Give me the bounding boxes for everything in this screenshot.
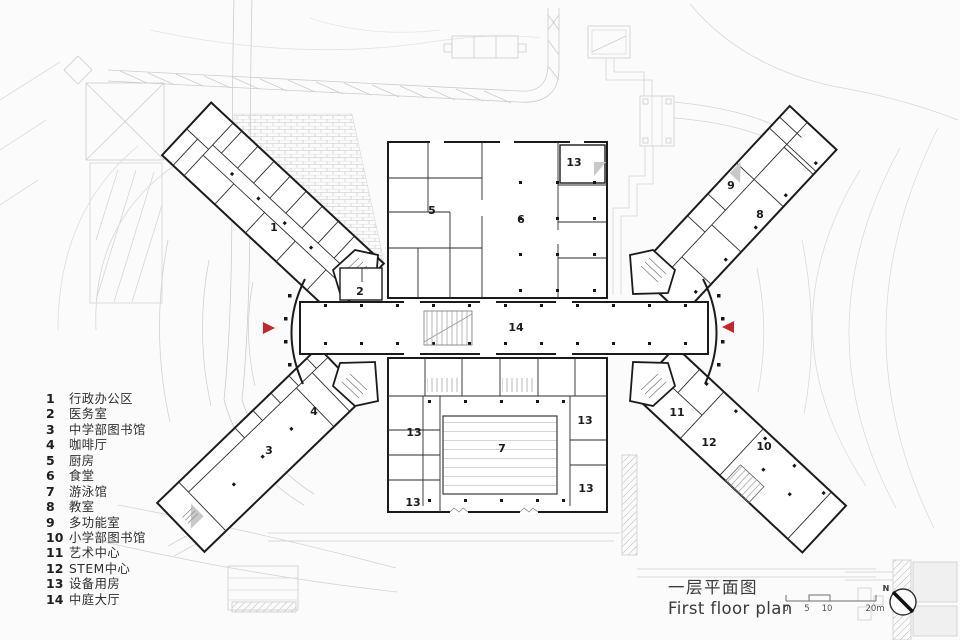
legend-item-number: 14: [46, 592, 69, 607]
room-label-6: 6: [517, 213, 525, 226]
wing-library-secondary: [157, 347, 365, 552]
building: [157, 103, 846, 553]
legend-item: 13 设备用房: [46, 576, 146, 591]
title-block: 一层平面图 First floor plan: [668, 574, 793, 618]
drawing-title-zh: 一层平面图: [668, 574, 793, 598]
legend-item-number: 12: [46, 561, 69, 576]
room-label-9: 9: [727, 179, 735, 192]
legend-item: 8 教室: [46, 499, 146, 514]
legend-item-label: 食堂: [69, 469, 95, 484]
room-label-13: 13: [577, 414, 592, 427]
drawing-title-en: First floor plan: [668, 599, 793, 618]
legend-item-label: 行政办公区: [69, 392, 133, 407]
legend-item-label: 中庭大厅: [69, 593, 120, 608]
legend-item: 3 中学部图书馆: [46, 422, 146, 437]
legend-item-label: 游泳馆: [69, 485, 107, 500]
legend-item: 1 行政办公区: [46, 391, 146, 406]
legend-item-label: 小学部图书馆: [69, 531, 146, 546]
room-label-8: 8: [756, 208, 764, 221]
scale-label-5: 5: [804, 604, 809, 614]
room-label-13: 13: [578, 482, 593, 495]
legend-item-number: 11: [46, 545, 69, 560]
room-label-1: 1: [270, 221, 278, 234]
legend: 1 行政办公区 2 医务室 3 中学部图书馆 4 咖啡厅 5 厨房 6 食堂 7…: [46, 391, 146, 607]
legend-item: 9 多功能室: [46, 515, 146, 530]
room-label-13: 13: [406, 426, 421, 439]
entrance-arrow-right: [263, 322, 275, 334]
legend-item: 6 食堂: [46, 468, 146, 483]
legend-item-label: 艺术中心: [69, 546, 120, 561]
room-label-14: 14: [508, 321, 524, 334]
legend-item-number: 9: [46, 515, 69, 530]
room-label-7: 7: [498, 442, 506, 455]
legend-item-number: 2: [46, 406, 69, 421]
legend-item-number: 13: [46, 576, 69, 591]
scale-bar: 0 5 10 20m: [783, 595, 884, 614]
legend-item-number: 7: [46, 484, 69, 499]
legend-item-label: 医务室: [69, 407, 107, 422]
legend-item-label: 教室: [69, 500, 95, 515]
atrium-band: [300, 300, 708, 356]
legend-item: 2 医务室: [46, 406, 146, 421]
swimming-pool: [443, 416, 557, 494]
room-label-5: 5: [428, 204, 436, 217]
legend-item-label: 设备用房: [69, 577, 120, 592]
legend-item: 14 中庭大厅: [46, 592, 146, 607]
room-label-3: 3: [265, 444, 273, 457]
legend-item-number: 10: [46, 530, 69, 545]
room-label-13: 13: [566, 156, 581, 169]
legend-item-number: 8: [46, 499, 69, 514]
room-label-13: 13: [405, 496, 420, 509]
scale-label-20m: 20m: [865, 604, 884, 614]
room-label-12: 12: [701, 436, 716, 449]
legend-item: 11 艺术中心: [46, 545, 146, 560]
scale-label-10: 10: [822, 604, 833, 614]
north-label: N: [883, 584, 890, 593]
legend-item-number: 4: [46, 437, 69, 452]
legend-item-label: 咖啡厅: [69, 438, 107, 453]
room-label-11: 11: [669, 406, 684, 419]
legend-item: 12 STEM中心: [46, 561, 146, 576]
legend-item: 10 小学部图书馆: [46, 530, 146, 545]
legend-item: 7 游泳馆: [46, 484, 146, 499]
entrance-arrow-left: [722, 321, 734, 333]
legend-item: 5 厨房: [46, 453, 146, 468]
floor-plan-page: 123456789101112131313131314 0 5 10 20m N…: [0, 0, 960, 640]
legend-item-number: 3: [46, 422, 69, 437]
legend-item-label: STEM中心: [69, 562, 130, 577]
legend-item-number: 6: [46, 468, 69, 483]
room-label-10: 10: [756, 440, 772, 453]
legend-item-label: 厨房: [69, 454, 95, 469]
legend-item-label: 中学部图书馆: [69, 423, 146, 438]
legend-item-label: 多功能室: [69, 516, 120, 531]
room-label-2: 2: [356, 285, 364, 298]
legend-item-number: 5: [46, 453, 69, 468]
legend-item: 4 咖啡厅: [46, 437, 146, 452]
room-label-4: 4: [310, 405, 318, 418]
legend-item-number: 1: [46, 391, 69, 406]
